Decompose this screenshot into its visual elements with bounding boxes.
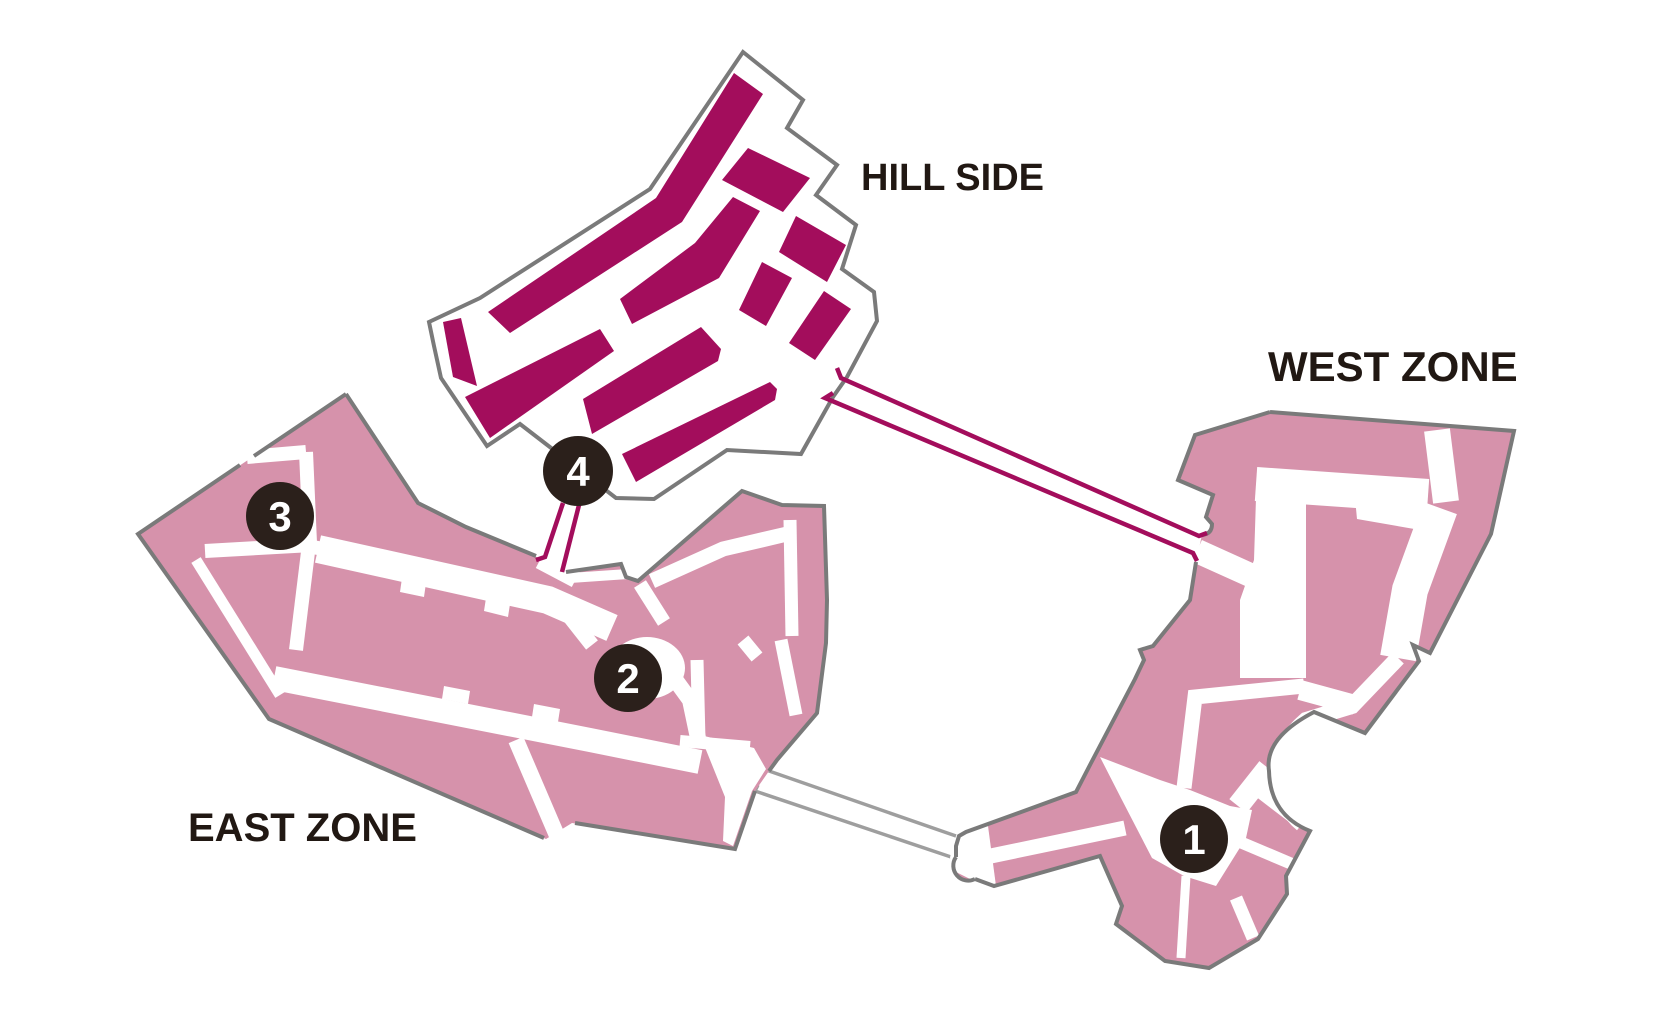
svg-text:1: 1 [1182,816,1205,863]
svg-text:HILL SIDE: HILL SIDE [861,157,1044,199]
svg-text:2: 2 [616,655,639,702]
svg-text:WEST ZONE: WEST ZONE [1268,343,1518,390]
svg-text:EAST ZONE: EAST ZONE [188,806,417,850]
svg-text:4: 4 [566,448,590,495]
svg-text:3: 3 [268,493,291,540]
